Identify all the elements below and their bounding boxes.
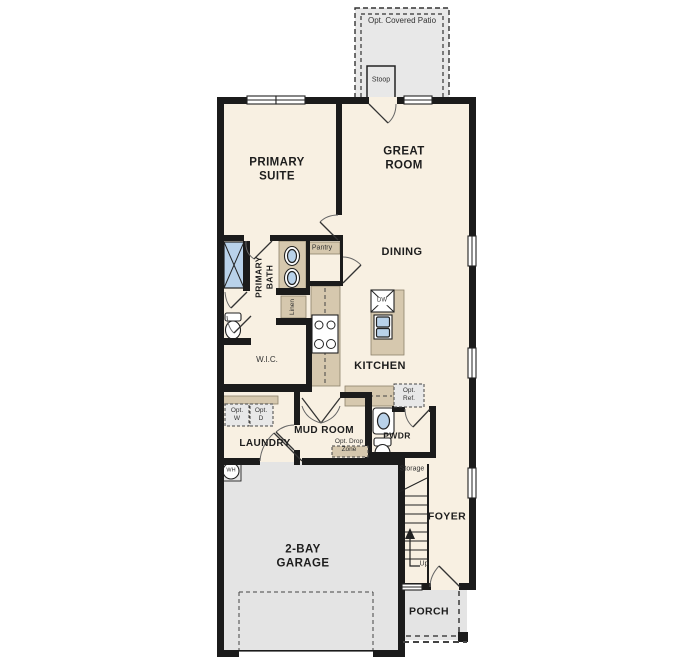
shower — [224, 242, 244, 288]
optional-washer — [225, 404, 249, 426]
floor-plan: Opt. Covered Patio Stoop PRIMARY SUITE G… — [0, 0, 687, 661]
optional-dryer — [250, 404, 273, 426]
garage-floor — [222, 462, 400, 654]
island-sink — [374, 315, 392, 339]
dining-window — [468, 236, 476, 266]
linen-closet — [281, 296, 306, 318]
foyer-window — [468, 468, 476, 498]
primary-suite-window — [247, 96, 276, 104]
dishwasher — [371, 290, 394, 312]
pantry-shelf — [307, 242, 340, 254]
optional-refrigerator — [394, 384, 424, 407]
primary-suite-window — [276, 96, 305, 104]
great-room-window — [404, 96, 432, 104]
optional-drop-zone-bench — [332, 446, 368, 457]
garage-door-threshold — [239, 650, 373, 652]
porch-post — [458, 632, 468, 642]
kitchen-window — [468, 348, 476, 378]
powder-sink — [373, 408, 394, 434]
floor-plan-drawing — [0, 0, 687, 661]
range — [312, 315, 338, 353]
laundry-counter — [222, 396, 278, 404]
porch-floor — [403, 588, 467, 640]
porch-sidelight — [402, 584, 422, 590]
